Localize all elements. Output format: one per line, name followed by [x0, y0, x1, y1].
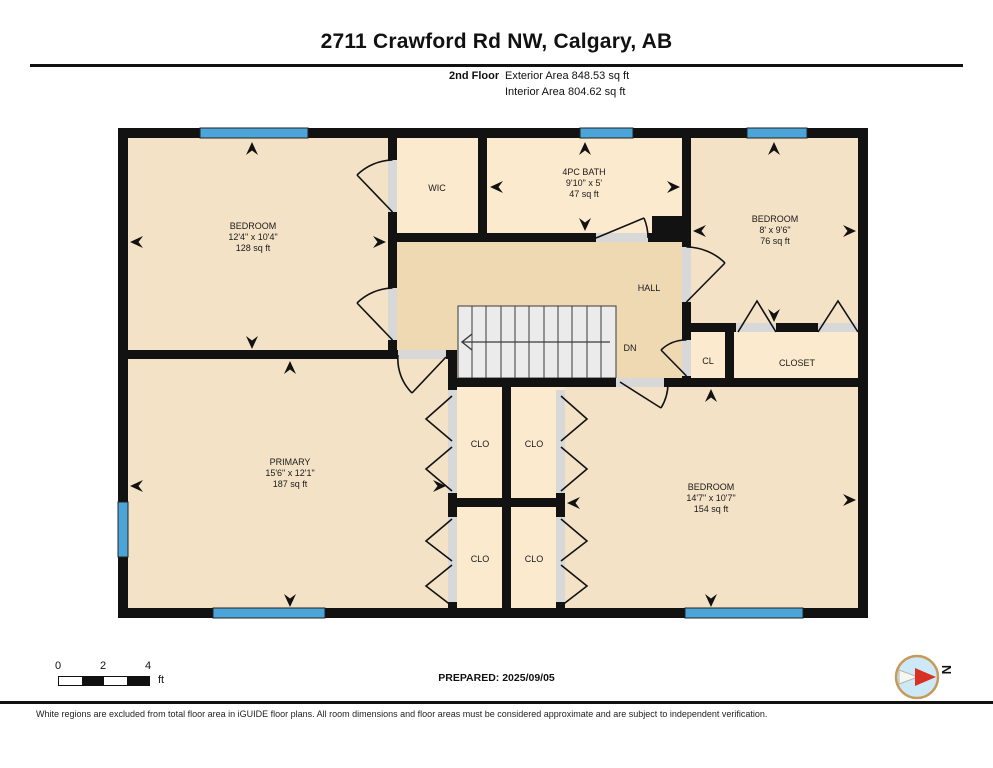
room-name: CLO — [525, 439, 544, 449]
compass: N — [888, 651, 958, 703]
scale-tick-2: 2 — [100, 660, 106, 672]
window — [213, 608, 325, 618]
compass-north-label: N — [939, 665, 954, 674]
room-area: 187 sq ft — [273, 479, 308, 489]
window — [747, 128, 807, 138]
room-name: CL — [702, 356, 714, 366]
room-name: WIC — [428, 183, 446, 193]
room-dimensions: 14'7" x 10'7" — [686, 493, 735, 503]
room-name: 4PC BATH — [562, 167, 605, 177]
room-name: HALL — [638, 283, 661, 293]
stairs-down-label: DN — [624, 343, 637, 353]
room-area: 47 sq ft — [569, 189, 599, 199]
room-area: 154 sq ft — [694, 504, 729, 514]
room-name: PRIMARY — [270, 457, 311, 467]
floor-plan-page: 2711 Crawford Rd NW, Calgary, AB 2nd Flo… — [0, 0, 993, 768]
footer-divider — [0, 701, 993, 704]
window — [685, 608, 803, 618]
room-name: CLO — [525, 554, 544, 564]
room-area: 76 sq ft — [760, 236, 790, 246]
room-dimensions: 15'6" x 12'1" — [265, 468, 314, 478]
floor-plan-drawing: BEDROOM 12'4" x 10'4" 128 sq ft WIC 4PC … — [0, 0, 993, 768]
room-name: BEDROOM — [752, 214, 799, 224]
prepared-date: PREPARED: 2025/09/05 — [0, 672, 993, 684]
room-name: CLO — [471, 439, 490, 449]
room-name: BEDROOM — [688, 482, 735, 492]
room-dimensions: 9'10" x 5' — [566, 178, 602, 188]
room-area: 128 sq ft — [236, 243, 271, 253]
disclaimer-text: White regions are excluded from total fl… — [36, 709, 767, 719]
room-dimensions: 8' x 9'6" — [759, 225, 790, 235]
room-dimensions: 12'4" x 10'4" — [228, 232, 277, 242]
window — [580, 128, 633, 138]
room-name: BEDROOM — [230, 221, 277, 231]
room-name: CLO — [471, 554, 490, 564]
scale-tick-4: 4 — [145, 660, 151, 672]
room-name: CLOSET — [779, 358, 816, 368]
scale-tick-0: 0 — [55, 660, 61, 672]
staircase — [458, 306, 616, 378]
window — [118, 502, 128, 557]
window — [200, 128, 308, 138]
